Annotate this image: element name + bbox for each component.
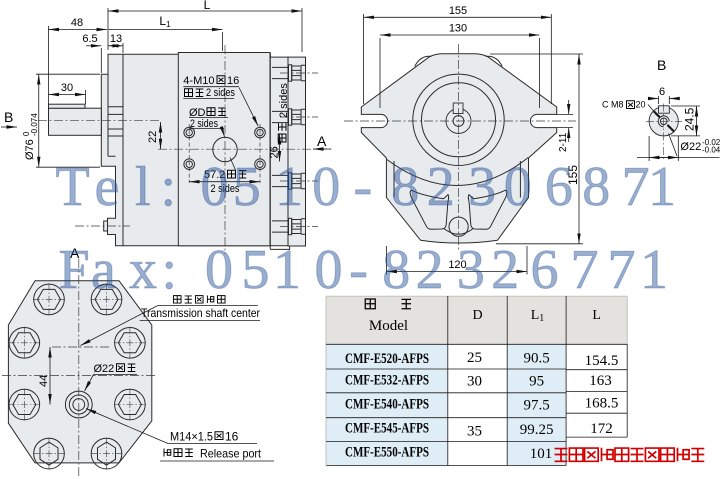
svg-text:CMF-E532-AFPS: CMF-E532-AFPS	[345, 373, 429, 389]
svg-text:20: 20	[636, 100, 646, 110]
svg-text:-0.04: -0.04	[702, 146, 720, 155]
svg-text:13: 13	[110, 33, 122, 45]
svg-text:2 sides: 2 sides	[278, 83, 290, 118]
svg-text:CMF-E520-AFPS: CMF-E520-AFPS	[345, 351, 429, 367]
svg-text:101: 101	[530, 446, 553, 462]
svg-text:Fax: 0510-82326771: Fax: 0510-82326771	[59, 239, 669, 301]
svg-text:97.5: 97.5	[523, 398, 549, 414]
svg-text:30: 30	[61, 82, 73, 94]
svg-text:Ø22: Ø22	[94, 363, 115, 375]
svg-text:-0.074: -0.074	[30, 113, 39, 136]
svg-text:Model: Model	[369, 318, 408, 334]
svg-text:Ø22: Ø22	[680, 141, 701, 153]
svg-text:Ø76: Ø76	[24, 139, 36, 160]
svg-text:Release port: Release port	[200, 447, 262, 461]
svg-text:48: 48	[71, 17, 83, 29]
svg-text:D: D	[472, 308, 482, 323]
svg-text:Tel: 0510-82306871: Tel: 0510-82306871	[56, 156, 677, 218]
svg-text:44: 44	[38, 375, 50, 387]
svg-text:6: 6	[659, 86, 665, 98]
svg-text:6.5: 6.5	[82, 33, 97, 45]
svg-text:C M8: C M8	[602, 100, 624, 110]
svg-text:4-M10: 4-M10	[183, 75, 214, 87]
svg-text:B: B	[4, 109, 13, 125]
svg-text:155: 155	[449, 5, 467, 17]
svg-text:16: 16	[227, 75, 239, 87]
svg-text:B: B	[657, 57, 666, 73]
svg-text:CMF-E545-AFPS: CMF-E545-AFPS	[345, 421, 429, 437]
svg-text:L: L	[204, 0, 211, 12]
svg-text:90.5: 90.5	[523, 351, 549, 367]
svg-text:A: A	[317, 133, 327, 149]
svg-text:130: 130	[449, 23, 467, 35]
svg-text:99.25: 99.25	[520, 422, 554, 438]
svg-text:168.5: 168.5	[585, 396, 619, 412]
svg-text:2 sides: 2 sides	[190, 118, 218, 130]
svg-text:M14×1.5: M14×1.5	[170, 430, 213, 444]
svg-text:25: 25	[467, 350, 482, 366]
svg-text:CMF-E550-AFPS: CMF-E550-AFPS	[345, 445, 429, 461]
svg-text:16: 16	[225, 430, 239, 444]
svg-text:L: L	[592, 308, 601, 323]
svg-text:2-11: 2-11	[558, 132, 569, 152]
svg-text:95: 95	[529, 374, 544, 390]
svg-text:172: 172	[590, 421, 613, 437]
svg-text:CMF-E540-AFPS: CMF-E540-AFPS	[345, 396, 429, 412]
svg-text:24.5: 24.5	[683, 107, 697, 131]
svg-text:163: 163	[589, 373, 612, 389]
svg-text:35: 35	[467, 423, 482, 439]
svg-text:2 sides: 2 sides	[206, 87, 235, 99]
svg-text:30: 30	[467, 374, 482, 390]
svg-text:22: 22	[147, 131, 159, 143]
svg-text:154.5: 154.5	[585, 353, 619, 369]
svg-text:Transmission shaft center: Transmission shaft center	[141, 306, 260, 320]
